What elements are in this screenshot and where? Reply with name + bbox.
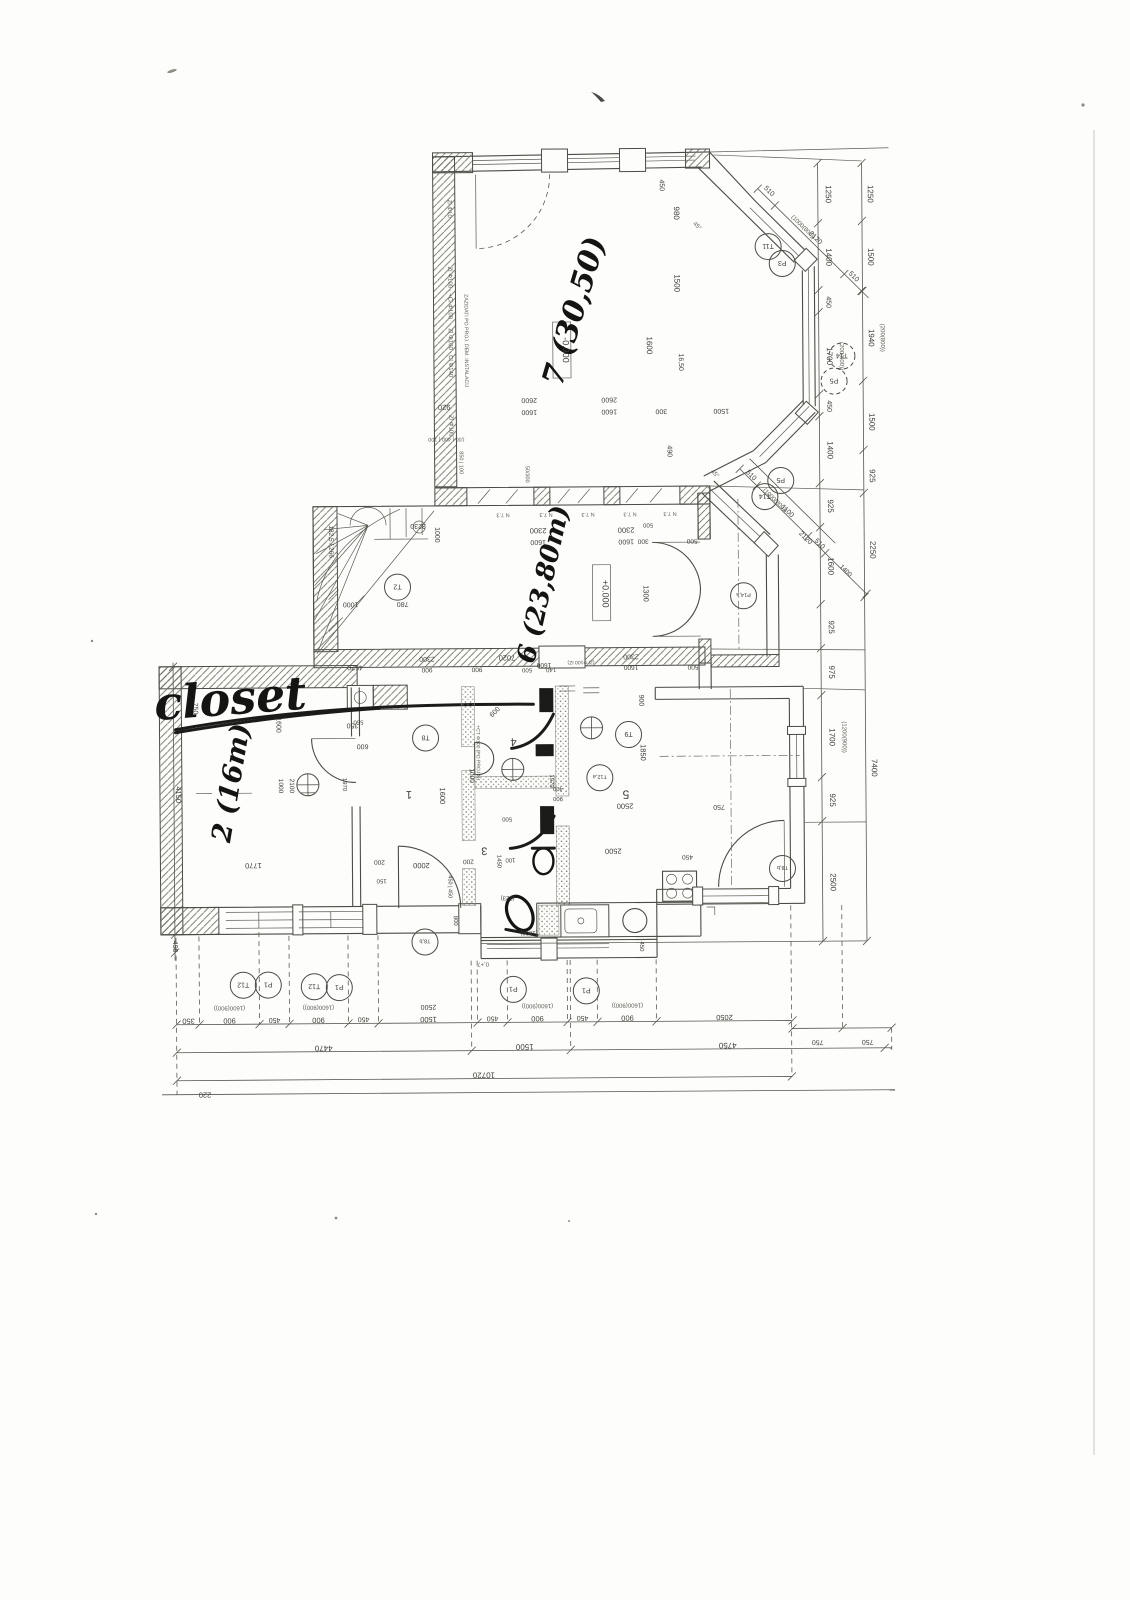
- dim-label: 1940: [867, 329, 876, 347]
- fixture-label-T12a: T12,a: [587, 765, 613, 791]
- fixture-label-text: T11: [762, 242, 774, 249]
- floorplan-drawing: closet2 (16m)7 (30,50)6 (23,80m)-0.300+0…: [0, 0, 1130, 1600]
- dim-label: 200: [463, 858, 474, 865]
- dim-label: 750: [191, 703, 198, 715]
- dim-label: 550: [353, 718, 364, 724]
- fixture-label-P1: P1: [326, 974, 352, 1000]
- dim-label: 1600: [530, 538, 546, 545]
- fixture-label-text: P1: [582, 986, 591, 993]
- dim-label: 50/300: [524, 466, 530, 483]
- dim-label: 2300: [618, 526, 635, 535]
- fixture-label-P1: P1: [500, 976, 526, 1002]
- dim-label: 450: [825, 400, 832, 412]
- fixture-label-text: T14: [759, 492, 771, 499]
- dim-label: 750: [713, 803, 725, 810]
- dim-label: 4: [510, 735, 516, 747]
- vestibule: [702, 481, 779, 668]
- dim-label: (1600(900)): [612, 1001, 643, 1007]
- fixture-label-T2: T2: [384, 574, 410, 600]
- dim-label: (200(800)): [879, 324, 885, 352]
- dim-label: 4750: [718, 1041, 736, 1050]
- cross-fixture: [297, 774, 319, 796]
- fixture-label-P1: P1: [573, 978, 599, 1004]
- cross-fixture: [502, 758, 524, 780]
- dim-label: 45°: [691, 221, 702, 232]
- fixture-label-text: P1: [264, 981, 273, 988]
- dim-label: (1600(900)): [214, 1004, 245, 1010]
- fixture-label-text: T12: [308, 982, 320, 989]
- room6-double-door: [652, 542, 701, 636]
- dim-label: 45°: [709, 469, 720, 480]
- dim-label: 2500: [617, 802, 634, 811]
- dim-label: 500: [501, 815, 512, 821]
- dim-label: 925: [828, 793, 837, 807]
- dim-label: 1450: [495, 855, 501, 869]
- dim-label: 600: [489, 706, 502, 719]
- dim-label: 3: [481, 845, 487, 857]
- dim-label: 1700: [828, 728, 837, 746]
- dim-label: 2300: [623, 652, 639, 659]
- dim-label: 182,5 / 266: [327, 525, 334, 558]
- fixture-label-P5: P5: [821, 368, 847, 394]
- dim-label: 2500: [829, 873, 838, 891]
- dim-label: 750: [862, 1038, 874, 1045]
- dim-label: 2600: [521, 396, 537, 403]
- dim-label: 1500: [515, 1042, 533, 1051]
- dim-label: Zl Φ100 · +Cl Φ100: [446, 267, 452, 320]
- fixture-label-P3: P3: [769, 250, 795, 276]
- dim-label: 450 | 450: [447, 875, 453, 898]
- fixture-label-text: T14: [836, 352, 848, 359]
- dim-label: 1: [406, 788, 412, 800]
- dim-label: 975: [827, 665, 836, 679]
- dim-label: 1600: [601, 408, 617, 415]
- dim-label: +0.000: [600, 580, 610, 608]
- dim-label: 900: [223, 1016, 236, 1025]
- dim-label: 7020: [499, 653, 516, 662]
- dim-label: N 7.3: [623, 510, 636, 516]
- dim-label: N 7.3: [581, 511, 594, 517]
- fixture-label-text: P1: [335, 983, 344, 990]
- dim-label: 200: [374, 858, 385, 865]
- dim-label: 1400: [826, 441, 835, 459]
- dim-label: 1770: [245, 861, 262, 870]
- dim-label: Zl Φ10: [446, 200, 452, 219]
- dim-label: 1500: [713, 407, 729, 414]
- dim-label: 1500: [420, 1015, 437, 1024]
- dim-label: 400: [552, 785, 563, 791]
- dim-label: 925: [826, 499, 835, 513]
- dim-label: 900: [552, 795, 563, 801]
- dim-label: 780: [397, 600, 409, 607]
- dim-label: 1600: [623, 663, 638, 670]
- dim-label: 350: [182, 1017, 195, 1026]
- room7-walls: [432, 147, 890, 487]
- dim-label: 900: [531, 1014, 544, 1023]
- cross-fixture: [580, 717, 602, 739]
- fixture-label-T8b: T8,b: [769, 855, 795, 881]
- dim-label: N 7.3: [663, 510, 676, 516]
- fixture-label-text: T8,b: [777, 864, 788, 870]
- dim-label: 1700: [825, 347, 834, 365]
- dim-label: 1400: [838, 563, 853, 578]
- dim-label: 600: [357, 742, 369, 749]
- dim-label: 2120: [797, 530, 813, 546]
- dim-label: 150: [376, 877, 387, 883]
- dim-label: 5: [622, 788, 629, 802]
- bay-window-upper: [697, 151, 818, 491]
- fixture-label-T12: T12: [301, 974, 327, 1000]
- fixture-label-P1: P1: [255, 972, 281, 998]
- hand-label: 7 (30,50): [536, 233, 613, 390]
- dim-label: 3230: [410, 522, 426, 529]
- dim-label: 500: [686, 537, 697, 544]
- dim-label: 500: [687, 663, 698, 670]
- partition-room6-room7: [313, 486, 710, 507]
- room6-walls: [313, 486, 711, 670]
- dim-label: 100: [505, 856, 516, 862]
- dim-label: 4470: [314, 1044, 332, 1053]
- dim-label: -0.300: [561, 337, 571, 363]
- dim-label: 1000: [468, 768, 475, 783]
- dim-label: 450: [824, 296, 831, 308]
- dim-label: 500: [642, 521, 653, 527]
- hand-label: closet: [152, 666, 308, 732]
- dim-label: 925: [868, 469, 877, 483]
- dim-label: 850 | 100: [458, 451, 464, 474]
- dim-label: 16,50: [677, 353, 684, 371]
- dim-label: 2500: [605, 847, 622, 856]
- sink: [561, 905, 609, 937]
- dim-label: 900: [312, 1016, 325, 1025]
- fixture-label-text: T8: [421, 733, 429, 740]
- dim-label: 1500: [672, 274, 681, 292]
- dim-label: 4150: [174, 786, 183, 803]
- dim-label: 800: [452, 916, 458, 927]
- fixture-label-text: T12: [237, 981, 249, 988]
- dim-label: (1000(800)): [789, 214, 816, 240]
- dim-label: (1800): [520, 929, 537, 935]
- dim-label: 1400: [824, 248, 833, 266]
- dim-label: 140: [545, 666, 556, 672]
- dim-label: 2300: [530, 526, 547, 535]
- dim-label: Zl Φ100: [447, 415, 453, 437]
- dim-label: 510: [813, 538, 826, 551]
- dim-label: 510: [762, 185, 775, 198]
- dim-label: 900: [621, 1014, 634, 1023]
- dim-label: 1500: [866, 248, 875, 266]
- fixture-label-text: T2: [393, 583, 401, 590]
- dim-label: Zl Φ100 · Cl Φ140: [447, 328, 453, 378]
- dim-label: 450: [487, 1014, 499, 1021]
- dim-label: 1000: [433, 527, 440, 543]
- dim-label: 1600: [826, 557, 835, 575]
- dim-label: 2050: [716, 1013, 733, 1022]
- fixture-label-P14a: P14,a: [730, 583, 756, 609]
- dim-label: 1970: [341, 778, 347, 792]
- dim-label: 1600: [438, 787, 447, 804]
- fixture-label-text: P1: [509, 985, 518, 992]
- dim-label: 900: [421, 666, 432, 673]
- dim-label: 1600: [274, 717, 281, 733]
- dim-label: 1500: [867, 413, 876, 431]
- dim-label: 2300: [419, 655, 435, 662]
- dim-label: ZAZIDATI PO PROJ. DEM. INSTALACIJ: [462, 294, 469, 388]
- dim-label: 500: [521, 666, 532, 672]
- dim-label: 450: [682, 853, 693, 860]
- dim-label: 2250: [868, 541, 877, 559]
- dim-label: 450: [358, 1015, 370, 1022]
- dim-label: 920: [438, 403, 451, 412]
- fixture-label-T12: T12: [230, 972, 256, 998]
- dim-label: 750: [812, 1038, 824, 1045]
- dim-label: 490: [666, 445, 673, 457]
- fixture-label-text: P3: [778, 259, 787, 266]
- dim-label: 980: [672, 206, 681, 220]
- fixture-label-text: T9: [624, 730, 632, 737]
- dim-label: 300: [655, 407, 667, 414]
- dim-label: 450: [577, 1014, 589, 1021]
- fixture-label-text: T8,b: [419, 937, 430, 943]
- fixture-label-T9: T9: [615, 721, 641, 747]
- dim-label: 10720: [472, 1070, 495, 1079]
- dim-label: 900: [637, 695, 644, 707]
- dim-label: 2100: [288, 779, 295, 794]
- dim-label: 1250: [824, 185, 833, 203]
- dim-label: 0,+7: [477, 961, 490, 967]
- dim-label: (1600(900)): [303, 1004, 334, 1010]
- fixture-label-text: P14,a: [735, 591, 750, 597]
- fixture-label-text: P5: [776, 476, 785, 483]
- dim-label: 510: [847, 270, 860, 283]
- dim-label: 450: [171, 941, 178, 953]
- scanned-floorplan-page: closet2 (16m)7 (30,50)6 (23,80m)-0.300+0…: [0, 0, 1130, 1600]
- dim-label: 1000: [343, 600, 359, 607]
- dim-label: 1000: [277, 779, 284, 794]
- dim-label: 1850: [639, 744, 648, 761]
- dim-label: 900: [471, 666, 482, 673]
- dim-label: N 7.3: [496, 511, 509, 517]
- dim-label: 220: [199, 1090, 212, 1099]
- dim-label: 450: [638, 941, 644, 952]
- dim-label: 1600: [645, 336, 654, 354]
- dim-label: (223): [501, 894, 515, 900]
- dim-label: 450: [269, 1016, 281, 1023]
- dim-label: 1600: [618, 538, 634, 545]
- dim-label: 4520: [347, 663, 363, 670]
- kitchen: [481, 871, 716, 961]
- fixture-label-T8: T8: [412, 725, 438, 751]
- dim-label: 2000: [413, 861, 430, 870]
- hand-label: 2 (16m): [206, 721, 257, 845]
- dim-label: 100 | 400 | 100: [428, 436, 465, 442]
- dim-label: (1600(900)): [522, 1002, 553, 1008]
- dim-label: (Zl Φ100 IZ): [567, 659, 594, 665]
- fixture-label-text: P5: [830, 377, 839, 384]
- basin: [623, 908, 647, 932]
- dim-label: 2500: [421, 1003, 437, 1010]
- dim-label: 7400: [870, 759, 879, 777]
- dim-label: 1600: [521, 408, 537, 415]
- washbasin-room3: [533, 848, 553, 874]
- dim-label: 1250: [866, 185, 875, 203]
- dim-label: 2600: [601, 396, 617, 403]
- dim-label: 510: [744, 469, 757, 482]
- dim-label: 925: [827, 620, 836, 634]
- dim-label: 1300: [642, 585, 651, 602]
- fixture-label-text: T12,a: [592, 773, 607, 779]
- dim-label: 300: [637, 537, 648, 544]
- dim-label: N 7.3: [539, 511, 552, 517]
- dim-label: (1200(900)): [840, 721, 846, 752]
- dim-label: 450: [658, 179, 665, 191]
